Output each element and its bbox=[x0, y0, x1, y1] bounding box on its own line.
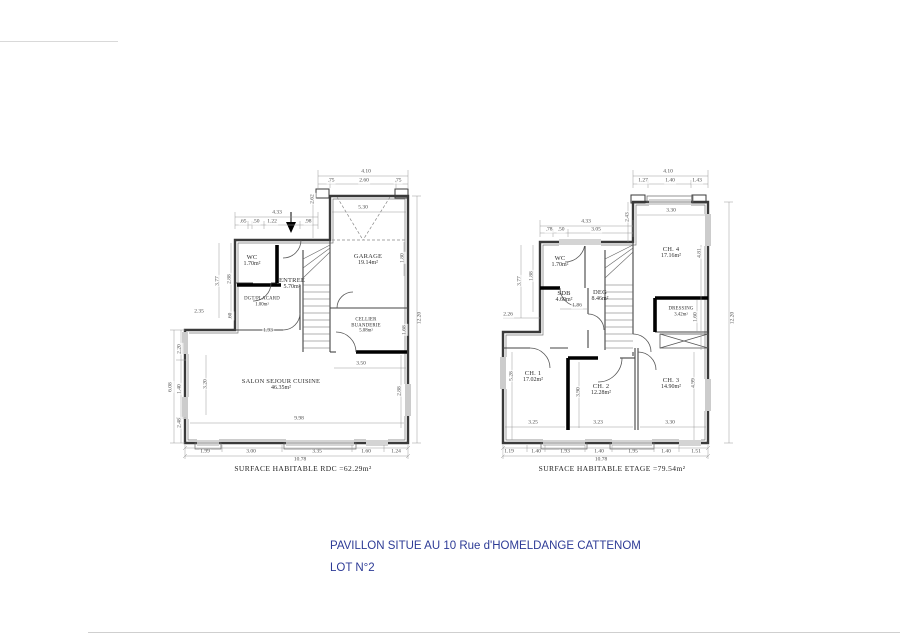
door-arcs-etage bbox=[530, 242, 656, 382]
door-arcs-rdc bbox=[253, 240, 356, 352]
surface-caption-rdc: SURFACE HABITABLE RDC =62.29m² bbox=[234, 464, 371, 473]
lot-number: LOT N°2 bbox=[330, 562, 375, 574]
surface-caption-etage: SURFACE HABITABLE ETAGE =79.54m² bbox=[539, 464, 686, 473]
rdc-plan-walls bbox=[170, 170, 421, 459]
dimension-lines-rdc bbox=[170, 170, 421, 459]
windows-rdc bbox=[181, 332, 412, 449]
entrance-arrow-icon bbox=[286, 212, 296, 233]
dimension-lines-etage bbox=[501, 170, 733, 459]
etage-plan-walls bbox=[499, 170, 733, 459]
floor-plan-page: WC1.70m²ENTREE5.70m²DGT/PLACARD1.00m²GAR… bbox=[0, 0, 900, 636]
stairs-rdc bbox=[303, 245, 330, 348]
document-title: PAVILLON SITUE AU 10 Rue d'HOMELDANGE CA… bbox=[330, 540, 641, 552]
garage-door-swing bbox=[332, 197, 406, 240]
stairs-etage bbox=[605, 245, 633, 348]
